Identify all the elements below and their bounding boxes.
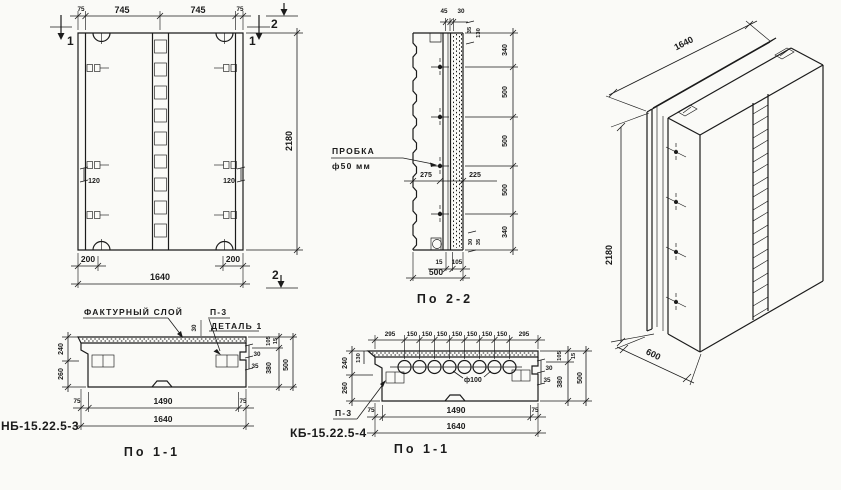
bottom-key-notch — [152, 381, 172, 387]
dim-260-nb: 260 — [58, 368, 65, 380]
dim-120-right: 120 — [223, 178, 235, 185]
dim-275: 275 — [420, 172, 432, 179]
p3-label-kb-group: П-3 — [333, 380, 386, 419]
dim-745-r: 745 — [190, 5, 205, 15]
panel-mark-kb: КБ-15.22.5-4 — [290, 426, 367, 440]
panel-mark-nb: НБ-15.22.5-3 — [1, 419, 79, 433]
dim-200-left: 200 — [81, 254, 95, 264]
section-nb-right-dims: 105 15 380 500 — [248, 333, 297, 391]
facture-label: ФАКТУРНЫЙ СЛОЙ — [84, 306, 183, 317]
dim-295-l: 295 — [385, 331, 396, 338]
anchor-offset-dims: 120 120 — [80, 167, 245, 185]
dim-500-b: 500 — [502, 135, 509, 147]
dim-30-step-kb: 30 — [545, 365, 553, 372]
dim-45: 45 — [440, 8, 448, 15]
dim-500-nb: 500 — [283, 359, 290, 371]
dim-30-step-nb: 30 — [253, 351, 261, 358]
section-2-2-bottom-dims: 15 105 500 — [406, 252, 470, 281]
dim-240-nb: 240 — [58, 343, 65, 355]
section-mark-1-left: 1 — [67, 34, 74, 48]
axo-ladder — [753, 94, 768, 320]
dim-75-nb-left: 75 — [73, 398, 81, 405]
dim-75-kb-left: 75 — [367, 407, 375, 414]
section-2-2: ПРОБКА ф50 мм 45 30 35 130 275 225 — [331, 8, 518, 306]
axo-plug-marks — [666, 143, 686, 311]
dim-15: 15 — [435, 259, 443, 266]
dim-150-3: 150 — [437, 331, 448, 338]
dim-380-nb: 380 — [266, 362, 273, 374]
dim-240-kb: 240 — [342, 357, 349, 369]
dim-105-nb: 105 — [266, 335, 272, 345]
dim-150-5: 150 — [467, 331, 478, 338]
axo-dims: 1640 2180 600 — [604, 21, 770, 385]
dim-225: 225 — [469, 172, 481, 179]
dim-745-l: 745 — [114, 5, 129, 15]
front-view: 120 120 75 745 745 75 1 1 — [50, 3, 303, 288]
section-2-2-right-dims: 340 500 500 500 340 30 35 — [465, 28, 518, 255]
dim-120-left: 120 — [88, 178, 100, 185]
dim-15-kb: 15 — [571, 352, 577, 359]
section-mark-1-right: 1 — [249, 34, 256, 48]
section-kb-right-dims: 105 15 380 500 — [540, 346, 592, 406]
dim-1640-front: 1640 — [150, 272, 170, 282]
hole-label: ф100 — [453, 371, 491, 384]
loop-notch-1 — [678, 105, 697, 116]
dim-30-facture: 30 — [191, 324, 198, 332]
dim-150-1: 150 — [407, 331, 418, 338]
dim-130-kb: 130 — [356, 353, 362, 363]
blueprint-sheet: 120 120 75 745 745 75 1 1 — [0, 0, 841, 490]
dim-150-7: 150 — [497, 331, 508, 338]
dim-500-total: 500 — [429, 267, 443, 277]
section-kb-right-step-dims: 30 35 — [537, 359, 553, 385]
top-notch — [430, 33, 441, 42]
dim-15-nb: 15 — [273, 337, 279, 344]
plug-label-line2: ф50 мм — [332, 161, 371, 171]
dim-75-nb-right: 75 — [239, 398, 247, 405]
dim-75-tl: 75 — [77, 6, 85, 13]
dim-75-kb-right: 75 — [531, 407, 539, 414]
bottom-loop — [433, 240, 442, 249]
dim-295-r: 295 — [519, 331, 530, 338]
section-kb-title: По 1-1 — [394, 442, 450, 456]
dim-500-kb: 500 — [577, 372, 584, 384]
section-nb-body — [78, 337, 246, 387]
dim-105: 105 — [452, 259, 463, 266]
dim-600-axo: 600 — [644, 347, 662, 363]
dim-1640-kb: 1640 — [447, 421, 466, 431]
dim-2180-front: 2180 — [284, 131, 294, 151]
dim-380-kb: 380 — [557, 376, 564, 388]
section-kb-body — [368, 351, 538, 401]
dim-1490-kb: 1490 — [447, 405, 466, 415]
dim-1640-nb: 1640 — [154, 414, 173, 424]
dim-75-tr: 75 — [236, 6, 244, 13]
axo-body — [647, 38, 823, 352]
section-nb-left-dims: 240 260 — [58, 332, 86, 392]
section-2-2-body — [413, 33, 463, 250]
section-mark-2-top: 2 — [271, 17, 278, 31]
dim-500-a: 500 — [502, 86, 509, 98]
dim-35-step-nb: 35 — [251, 363, 259, 370]
dim-340-top: 340 — [502, 44, 509, 56]
dim-105-kb: 105 — [557, 350, 563, 360]
vent-channel-ladder — [155, 40, 167, 237]
p3-label-nb: П-3 — [210, 307, 227, 317]
dim-35-bottomright: 35 — [476, 238, 482, 245]
front-top-dims: 75 745 745 75 — [70, 5, 251, 30]
plug-label-line1: ПРОБКА — [332, 146, 375, 156]
section-2-2-title: По 2-2 — [417, 292, 473, 306]
detail-1-label: ДЕТАЛЬ 1 — [211, 321, 262, 331]
front-bottom-dims: 200 200 1640 — [71, 253, 250, 288]
section-nb-bottom-dims: 75 1490 75 1640 — [73, 389, 254, 430]
section-mark-2-bottom: 2 — [272, 268, 279, 282]
dim-35-step-kb: 35 — [543, 377, 551, 384]
section-nb: ФАКТУРНЫЙ СЛОЙ 30 П-3 ДЕТАЛЬ 1 30 35 240… — [1, 306, 297, 459]
section-kb: ф100 П-3 295 150 150 150 150 150 — [290, 331, 592, 456]
dim-f100: ф100 — [464, 377, 482, 384]
dim-35-topright: 35 — [467, 26, 473, 33]
plug-label: ПРОБКА ф50 мм — [331, 146, 437, 171]
section-kb-bottom-dims: 75 1490 75 1640 — [367, 403, 546, 437]
dim-150-6: 150 — [482, 331, 493, 338]
section-nb-title: По 1-1 — [124, 445, 180, 459]
dim-500-c: 500 — [502, 184, 509, 196]
facture-layer-label: ФАКТУРНЫЙ СЛОЙ 30 — [83, 306, 201, 338]
dim-150-2: 150 — [422, 331, 433, 338]
dim-1490-nb: 1490 — [154, 396, 173, 406]
dim-2180-axo: 2180 — [604, 245, 614, 265]
front-height-dim: 2180 — [246, 28, 303, 255]
dim-1640-axo: 1640 — [672, 34, 694, 52]
dim-340-bottom: 340 — [502, 226, 509, 238]
technical-drawing: 120 120 75 745 745 75 1 1 — [0, 0, 841, 490]
section-marks: 1 1 2 2 — [50, 3, 298, 288]
side-anchors — [87, 65, 237, 219]
plug-marks — [431, 58, 449, 223]
dim-150-4: 150 — [452, 331, 463, 338]
dim-30-top: 30 — [457, 8, 465, 15]
dim-260-kb: 260 — [342, 382, 349, 394]
axonometric-view: 1640 2180 600 — [604, 21, 823, 385]
p3-label-kb: П-3 — [335, 408, 352, 418]
loop-notch-2 — [775, 48, 794, 59]
front-view-body: 120 120 — [78, 33, 245, 250]
dim-30-bottomright: 30 — [468, 239, 474, 245]
dim-200-right: 200 — [226, 254, 240, 264]
lifting-loops — [93, 33, 233, 250]
bottom-key-notch-kb — [445, 395, 465, 401]
